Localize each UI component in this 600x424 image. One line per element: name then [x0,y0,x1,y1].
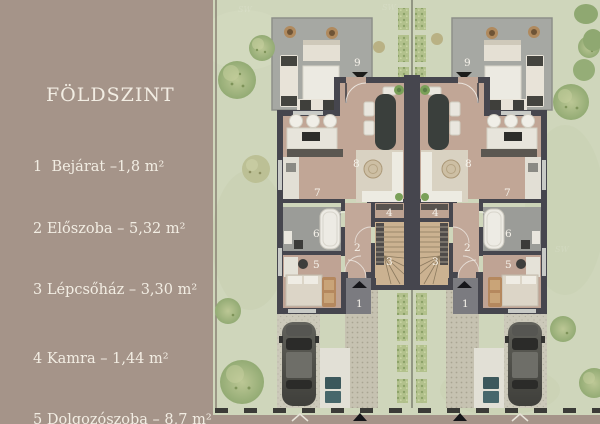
trash-bin [325,391,341,403]
legend-item-5: 5 Dolgozószoba – 8,7 m² [33,410,213,424]
wall-mid-horizontal [283,199,345,203]
room-label-3: 3 [386,256,393,268]
room-label-7: 7 [314,187,321,199]
dining-chair [364,121,374,135]
window [278,248,282,276]
tree [550,316,576,342]
paved-path-side [371,290,378,318]
room-label-3: 3 [432,256,439,268]
room-label-6: 6 [313,228,320,240]
wall-shower-office [283,251,341,255]
dry-bush [373,41,385,53]
tree [220,360,264,404]
car-mirror [315,336,319,343]
lounger-pillow [281,96,297,106]
tree [218,61,256,99]
room-label-1: 1 [462,298,469,310]
room-label-2: 2 [464,242,471,254]
legend-list: 1 Bejárat –1,8 m² 2 Előszoba – 5,32 m² 3… [33,116,213,424]
tree [215,298,241,324]
room-label-1: 1 [356,298,363,310]
room-label-9: 9 [354,57,361,69]
tree [249,35,275,61]
garden-patch [416,379,427,403]
window [278,160,282,190]
sink [284,231,292,244]
room-label-4: 4 [432,207,439,219]
window [288,309,316,313]
coffee-table [364,160,382,178]
room-label-8: 8 [465,158,472,170]
room-label-2: 2 [354,242,361,254]
room-label-7: 7 [504,187,511,199]
plant [395,193,403,201]
wall-top-right-a [334,77,346,83]
car-mirror [279,336,283,343]
garden-patch [398,35,409,62]
car-windshield [286,338,312,350]
watermark-text: SW [382,3,396,12]
lawn-mottle [212,170,288,310]
legend-item-3: 3 Lépcsőház – 3,30 m² [33,280,213,301]
living-area [356,150,403,202]
legend-title: FÖLDSZINT [46,84,213,106]
garden-patch [397,345,408,372]
office-chair [298,259,308,269]
kitchen-sink [286,163,296,172]
watermark-text: SW [238,5,252,14]
cooktop [302,132,320,141]
wall-top-right-b [366,77,404,83]
dining-chair [364,102,374,116]
car-hood [286,325,312,336]
wall-left [277,110,283,308]
bench-pillow [323,100,334,111]
garden-patch [397,319,408,341]
room-label-5: 5 [313,259,320,271]
floorplan-page: SW SW SW 1 2 3 4 5 6 7 8 9 1 2 3 4 5 6 7… [0,0,600,424]
wall-porch-stub-b [366,272,375,278]
legend-panel: FÖLDSZINT 1 Bejárat –1,8 m² 2 Előszoba –… [0,0,213,424]
stair-storage [376,223,384,265]
room-label-5: 5 [505,259,512,271]
wall-porch-stub-a [342,272,348,278]
legend-item-1: 1 Bejárat –1,8 m² [33,157,213,178]
bar-stool [307,115,320,128]
trash-bin [325,377,341,389]
garden-patch [398,8,409,30]
legend-item-4: 4 Kamra – 1,44 m² [33,349,213,370]
terrace-sofa-back [303,40,340,45]
room-label-6: 6 [505,228,512,240]
wall-porch-left [342,278,346,314]
street-strip [213,415,600,424]
garden-patch [416,345,427,372]
dry-bush [431,33,443,45]
car [279,322,319,406]
hall-floor [345,203,371,278]
terrace-plant-core [329,30,335,36]
car-rear-window [286,380,312,389]
dining-chair [383,87,396,95]
daybed-pillow [304,276,318,284]
watermark-text: SW [555,245,569,254]
lounger-pillow [281,56,297,66]
bench-pillow [300,100,311,111]
terrace-plant-core [287,29,293,35]
plant-core [397,88,401,92]
garden-patch [416,319,427,341]
sofa-right [392,152,403,192]
daybed-pillow [288,276,302,284]
dining-table [375,94,396,150]
bush [242,155,270,183]
terrace-door-gap [346,77,366,83]
wall-hall-b [341,227,345,256]
garden-patch [397,379,408,403]
legend-item-2: 2 Előszoba – 5,32 m² [33,219,213,240]
garden-patch [397,293,408,315]
garden-patch [416,293,427,315]
garden-patch [415,8,426,30]
bar-stool [290,115,303,128]
garden-patch [415,35,426,62]
room-label-8: 8 [353,158,360,170]
room-label-4: 4 [386,207,393,219]
tree [553,84,589,120]
washer [294,240,303,249]
wall-hall-a [341,203,345,211]
car-roof [286,352,312,378]
bar-stool [324,115,337,128]
wood-sofa-cushion [324,280,334,290]
kitchen-counter-dark [287,149,343,157]
party-wall [404,75,420,290]
room-label-9: 9 [464,57,471,69]
wall-stairs-a [371,199,375,227]
desk [284,257,298,277]
wood-sofa-cushion [324,293,334,303]
